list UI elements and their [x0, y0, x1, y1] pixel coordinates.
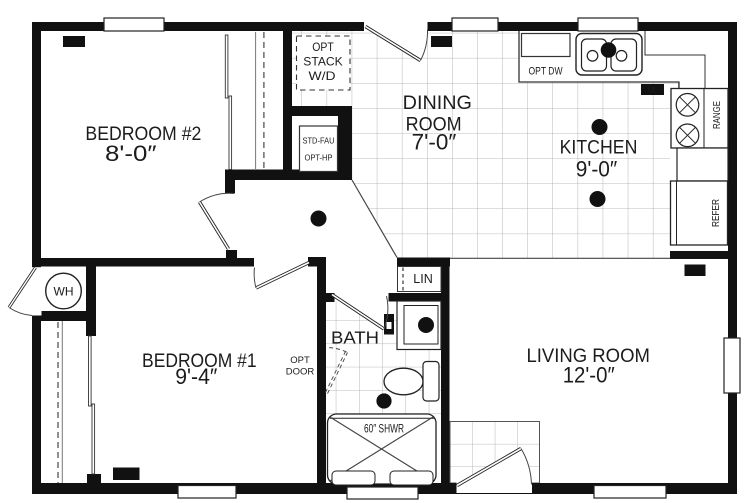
svg-text:OPT-HP: OPT-HP [305, 153, 333, 163]
svg-text:DINING: DINING [403, 92, 472, 114]
svg-text:LIN: LIN [413, 271, 433, 286]
svg-text:7'-0″: 7'-0″ [412, 130, 457, 155]
svg-text:9'-4″: 9'-4″ [175, 364, 217, 389]
svg-text:BATH: BATH [331, 328, 379, 348]
svg-text:OPT: OPT [290, 355, 310, 366]
svg-text:OPT: OPT [312, 40, 334, 54]
svg-text:DOOR: DOOR [286, 367, 315, 378]
svg-text:WH: WH [54, 285, 74, 299]
svg-text:REFER: REFER [710, 199, 722, 227]
svg-text:STACK: STACK [303, 55, 342, 69]
svg-text:OPT DW: OPT DW [529, 66, 563, 78]
svg-text:W/D: W/D [309, 69, 336, 83]
svg-text:12'-0″: 12'-0″ [563, 363, 615, 388]
svg-text:RANGE: RANGE [711, 101, 723, 129]
svg-text:60″ SHWR: 60″ SHWR [364, 422, 404, 436]
svg-text:UL: UL [647, 86, 658, 95]
svg-text:STD-FAU: STD-FAU [303, 136, 335, 146]
svg-text:9'-0″: 9'-0″ [576, 157, 618, 182]
svg-text:KITCHEN: KITCHEN [560, 137, 638, 159]
svg-text:8'-0″: 8'-0″ [105, 141, 157, 166]
